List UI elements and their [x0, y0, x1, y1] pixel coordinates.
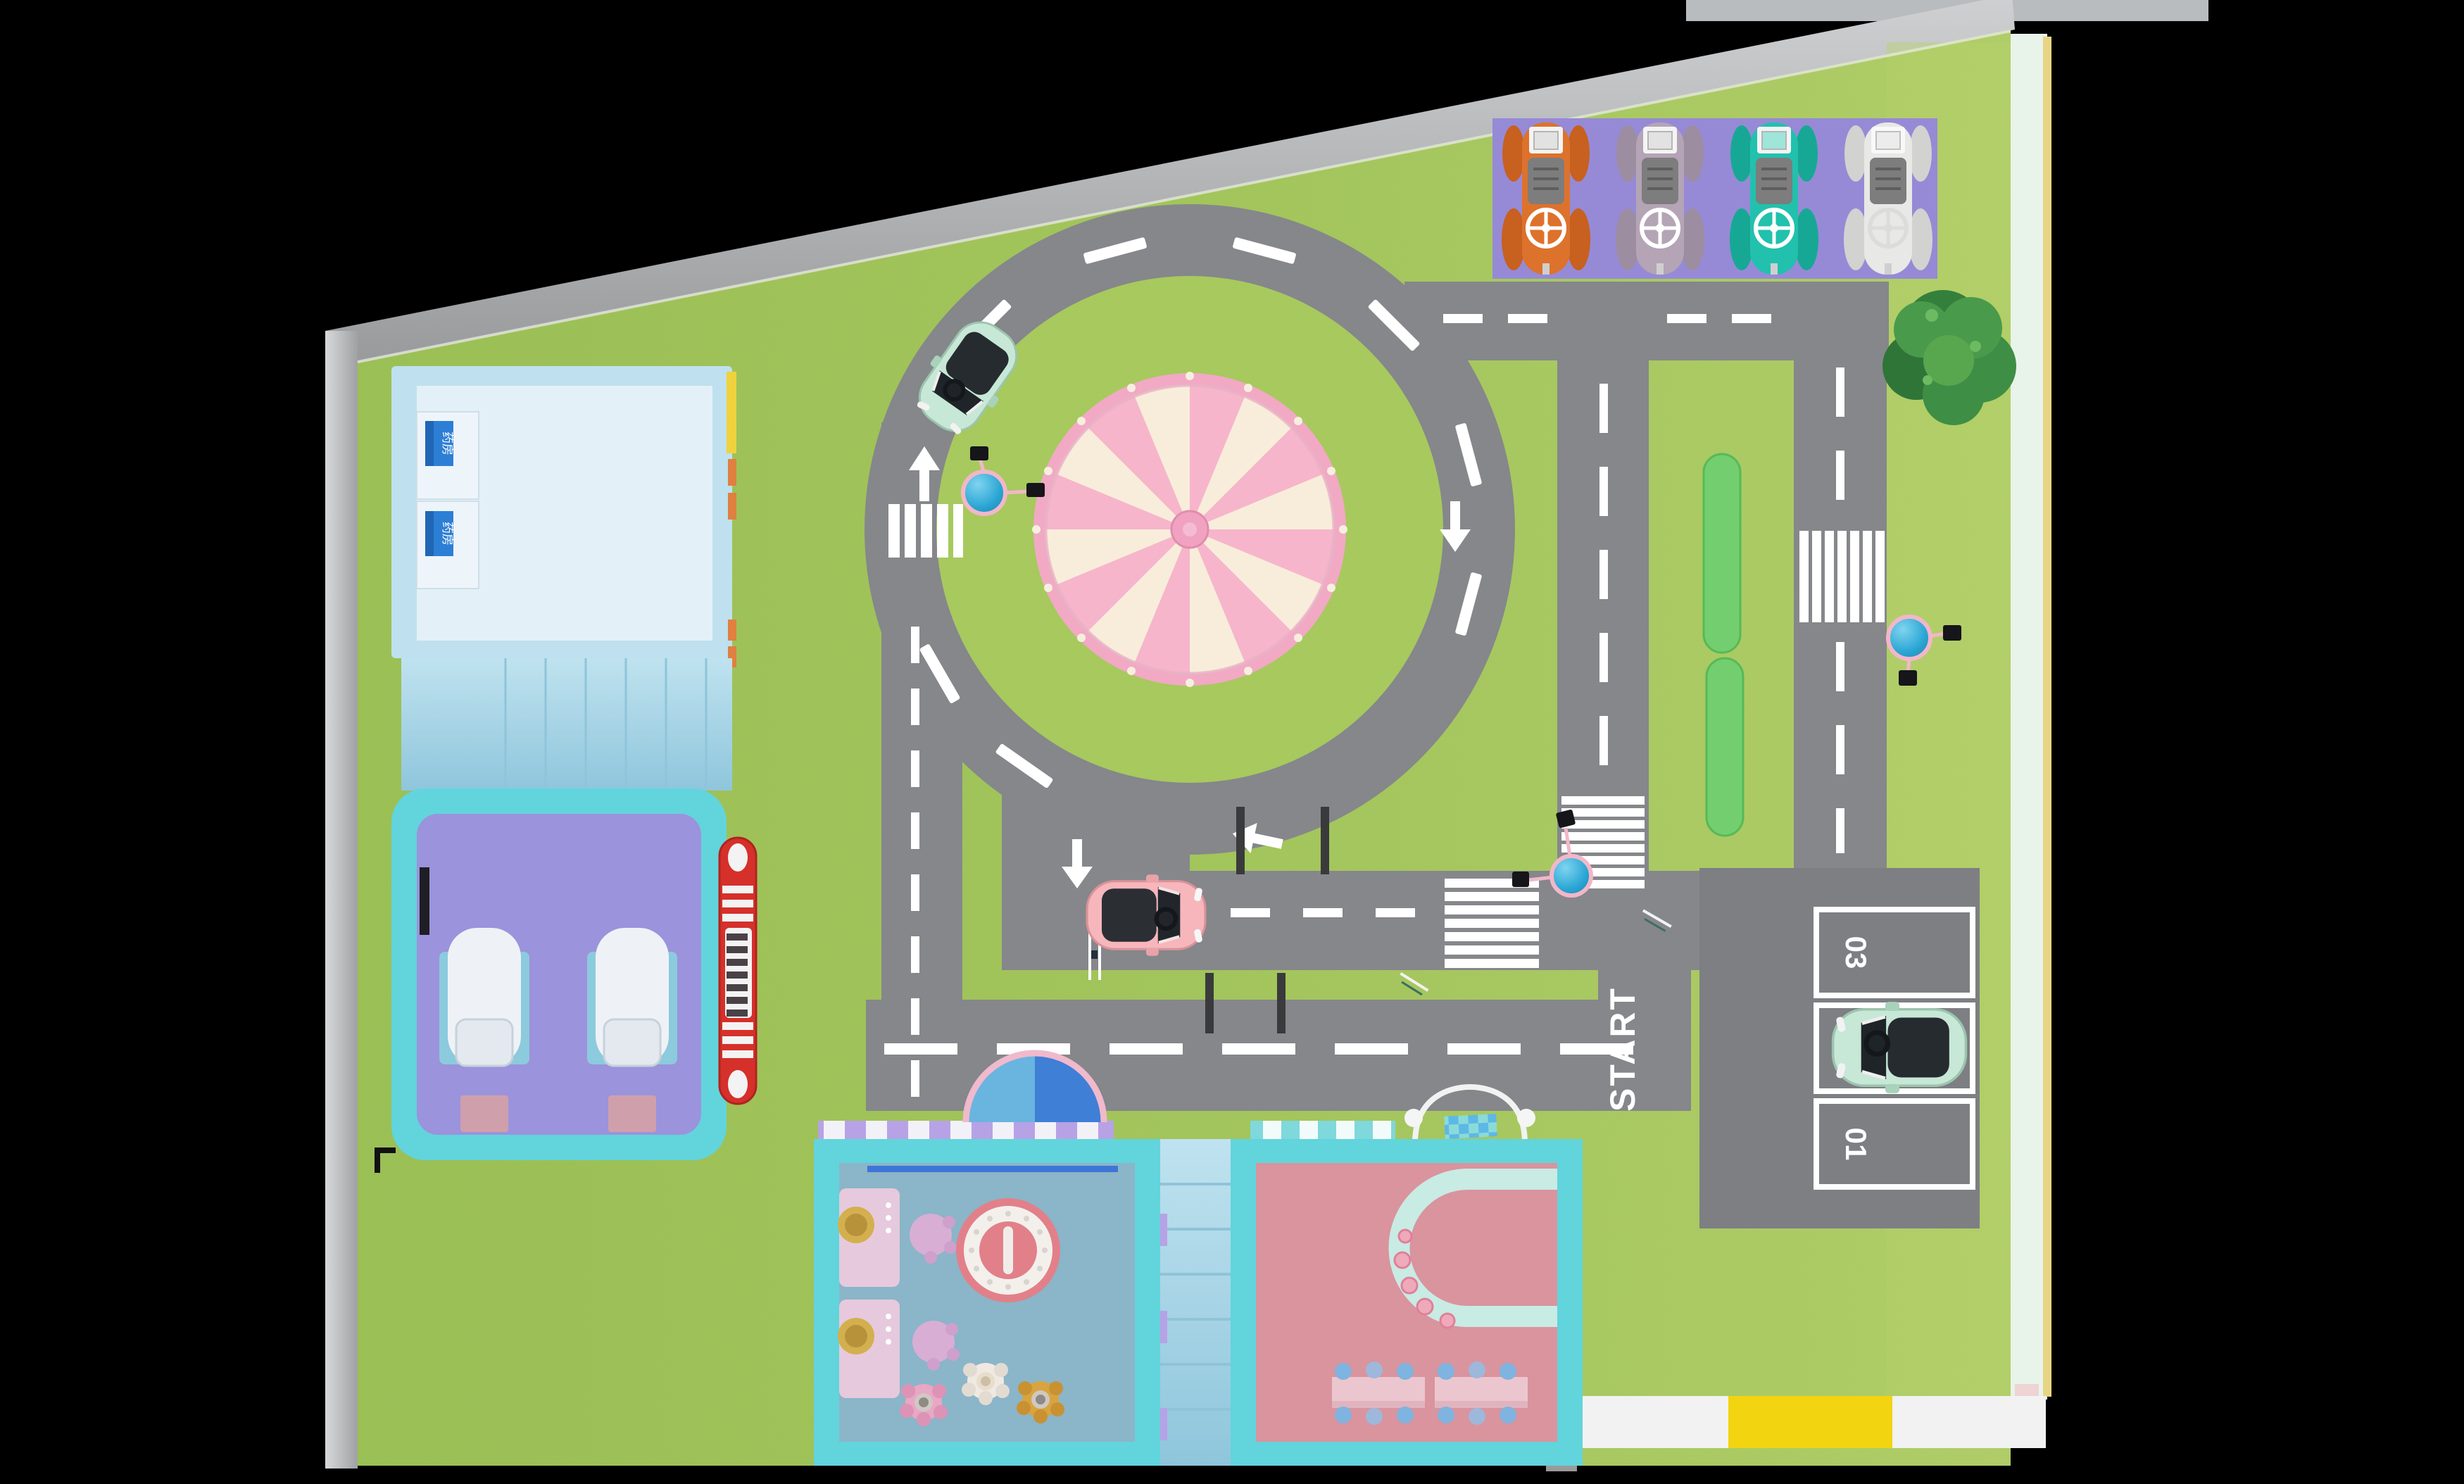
lamp1-sign-top — [970, 446, 988, 460]
party-table-2 — [1435, 1362, 1528, 1425]
pink-floor-mat-right — [608, 1095, 656, 1132]
start-line-label: START — [1603, 986, 1642, 1112]
lamp1-sign-right — [1026, 483, 1045, 497]
white-mat-right — [1892, 1396, 2046, 1448]
lamp2-sign-right — [1943, 625, 1961, 641]
white-mat-left — [1569, 1396, 1728, 1448]
recliner-seat-left — [439, 928, 529, 1066]
course-road-dashes — [1231, 908, 1415, 917]
pink-car-on-course — [1087, 874, 1205, 956]
pharmacy-building: 药房 药房 — [391, 366, 736, 791]
stairs — [1160, 1139, 1231, 1466]
blue-slat-deck — [401, 658, 732, 791]
recliner-seat-right — [587, 928, 677, 1066]
pink-track-room — [1231, 1087, 1583, 1466]
hedge-strip-bottom — [1706, 658, 1743, 836]
yellow-mat — [1728, 1396, 1892, 1448]
lamp2-sign-bottom — [1899, 670, 1917, 686]
bay-01-label: 01 — [1840, 1128, 1873, 1161]
pharmacy-sign-1: 药房 — [441, 432, 454, 455]
crosswalk-road-b — [1799, 531, 1885, 622]
wall-slot — [420, 867, 429, 935]
mint-car-in-bay-02 — [1833, 1002, 1966, 1093]
left-wall — [325, 331, 358, 1469]
carousel-canopy — [1032, 372, 1347, 687]
yellow-ladder-rail — [727, 372, 736, 453]
bay-03-label: 03 — [1840, 936, 1873, 969]
hedge-strip-top — [1704, 454, 1740, 653]
red-striped-play-bus — [719, 838, 756, 1104]
right-wall-yellow-edge — [2043, 37, 2051, 1397]
floorplan-render: START 03 02 01 — [0, 0, 2464, 1484]
pharmacy-sign-2: 药房 — [441, 522, 454, 546]
vanity-table-1 — [838, 1188, 900, 1287]
hedges — [1704, 454, 1743, 836]
rest-room — [375, 788, 727, 1173]
traffic-park-floorplan: START 03 02 01 — [0, 0, 2464, 1484]
right-wall — [2011, 34, 2051, 1401]
crosswalk-course-road — [1445, 879, 1539, 968]
lamp3-sign-left — [1512, 872, 1529, 887]
donut-table — [956, 1198, 1060, 1302]
glazing-strip — [867, 1166, 1118, 1172]
party-table-1 — [1332, 1362, 1425, 1425]
vanity-table-2 — [838, 1300, 900, 1398]
pharmacy-cabinet-1: 药房 — [417, 412, 479, 499]
pharmacy-cabinet-2: 药房 — [417, 501, 479, 589]
pink-floor-mat-left — [460, 1095, 508, 1132]
